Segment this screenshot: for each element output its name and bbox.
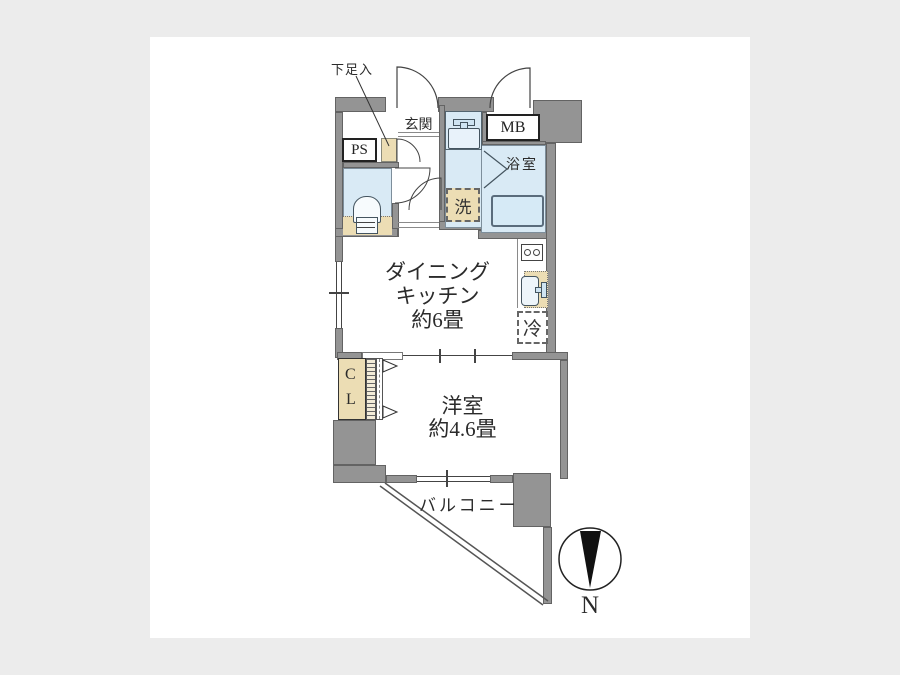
wall-segment bbox=[490, 475, 513, 483]
entrance-label: 玄関 bbox=[398, 114, 439, 134]
wall-segment bbox=[333, 420, 376, 465]
refrigerator-space: 冷 bbox=[517, 311, 548, 344]
floor-plan-page: PS MB 洗 冷 C L bbox=[0, 0, 900, 675]
sliding-door-tick bbox=[439, 349, 441, 363]
window-line bbox=[341, 262, 342, 328]
bedroom-label-line2: 約4.6畳 bbox=[400, 418, 525, 441]
bedroom-label-line1: 洋室 bbox=[400, 395, 525, 418]
kitchen-faucet-icon bbox=[541, 282, 547, 298]
wall-segment bbox=[438, 97, 494, 112]
window-line bbox=[417, 476, 490, 477]
balcony-label: バルコニー bbox=[419, 491, 519, 516]
shoe-cabinet bbox=[381, 138, 397, 162]
wall-segment bbox=[533, 100, 582, 143]
toilet-tank-line bbox=[357, 222, 375, 223]
dining-kitchen-label: ダイニング キッチン 約6畳 bbox=[370, 260, 505, 332]
wall-segment bbox=[543, 527, 552, 604]
closet-label-c: C bbox=[345, 366, 356, 384]
compass-north-label: N bbox=[576, 592, 604, 620]
window-line bbox=[336, 262, 337, 328]
meter-box: MB bbox=[486, 114, 540, 141]
window-line bbox=[417, 481, 490, 482]
pipe-space-box: PS bbox=[342, 138, 377, 162]
dining-kitchen-label-line3: 約6畳 bbox=[370, 308, 505, 332]
laundry-label: 洗 bbox=[455, 193, 472, 218]
closet-label-l: L bbox=[346, 391, 356, 409]
refrigerator-label: 冷 bbox=[523, 314, 542, 341]
wall-segment bbox=[333, 465, 386, 483]
entrance-step-line bbox=[398, 136, 439, 137]
stove-burner-icon bbox=[524, 249, 531, 256]
wall-segment bbox=[335, 97, 386, 112]
closet-door-hatch bbox=[366, 358, 376, 420]
wall-segment bbox=[560, 360, 568, 479]
laundry-space: 洗 bbox=[446, 188, 480, 222]
dining-kitchen-label-line2: キッチン bbox=[370, 284, 505, 308]
wall-segment bbox=[386, 475, 417, 483]
bathtub-icon bbox=[491, 195, 544, 227]
stove-burner-icon bbox=[533, 249, 540, 256]
window-tick bbox=[329, 292, 349, 294]
threshold-line bbox=[398, 227, 439, 228]
bedroom-label: 洋室 約4.6畳 bbox=[400, 395, 525, 441]
wall-segment bbox=[512, 352, 568, 360]
sliding-door-tick bbox=[474, 349, 476, 363]
sliding-door-track bbox=[403, 355, 512, 356]
kitchen-counter-edge bbox=[517, 239, 518, 308]
sink-basin bbox=[448, 128, 480, 149]
toilet-tank-icon bbox=[356, 217, 378, 234]
closet-door-dash bbox=[379, 359, 381, 419]
dining-kitchen-label-line1: ダイニング bbox=[370, 260, 505, 284]
wall-segment bbox=[335, 112, 343, 262]
bathroom-label: 浴室 bbox=[506, 154, 538, 174]
window-tick bbox=[446, 470, 448, 487]
wall-segment bbox=[513, 473, 551, 527]
toilet-tank-line bbox=[357, 227, 375, 228]
shoe-cabinet-label: 下足入 bbox=[331, 59, 373, 78]
meter-box-label: MB bbox=[501, 119, 526, 137]
pipe-space-label: PS bbox=[351, 142, 368, 159]
threshold-line bbox=[398, 222, 439, 223]
